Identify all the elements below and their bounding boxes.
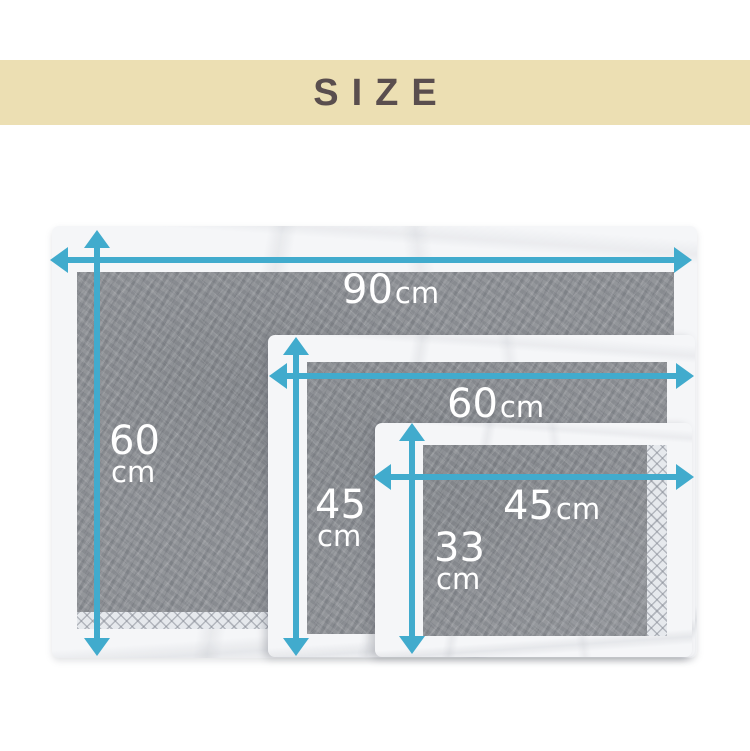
pad-45x33 (375, 423, 692, 657)
width-label-45cm: 45cm (503, 486, 600, 526)
height-arrow-45cm (293, 354, 299, 639)
height-arrow-60cm (94, 247, 100, 639)
width-label-90cm: 90cm (342, 270, 439, 310)
width-label-60cm: 60cm (447, 384, 544, 424)
size-infographic: SIZE 90cm 60 cm 60 (0, 0, 750, 751)
width-arrow-45cm (390, 474, 677, 480)
page-title: SIZE (300, 74, 449, 112)
height-label-33cm: 33 cm (434, 528, 485, 594)
size-banner: SIZE (0, 60, 750, 125)
height-label-45cm: 45 cm (315, 485, 366, 551)
height-arrow-33cm (409, 440, 415, 637)
width-arrow-90cm (67, 257, 675, 263)
width-arrow-60cm (286, 373, 677, 379)
height-label-60cm: 60 cm (109, 421, 160, 487)
